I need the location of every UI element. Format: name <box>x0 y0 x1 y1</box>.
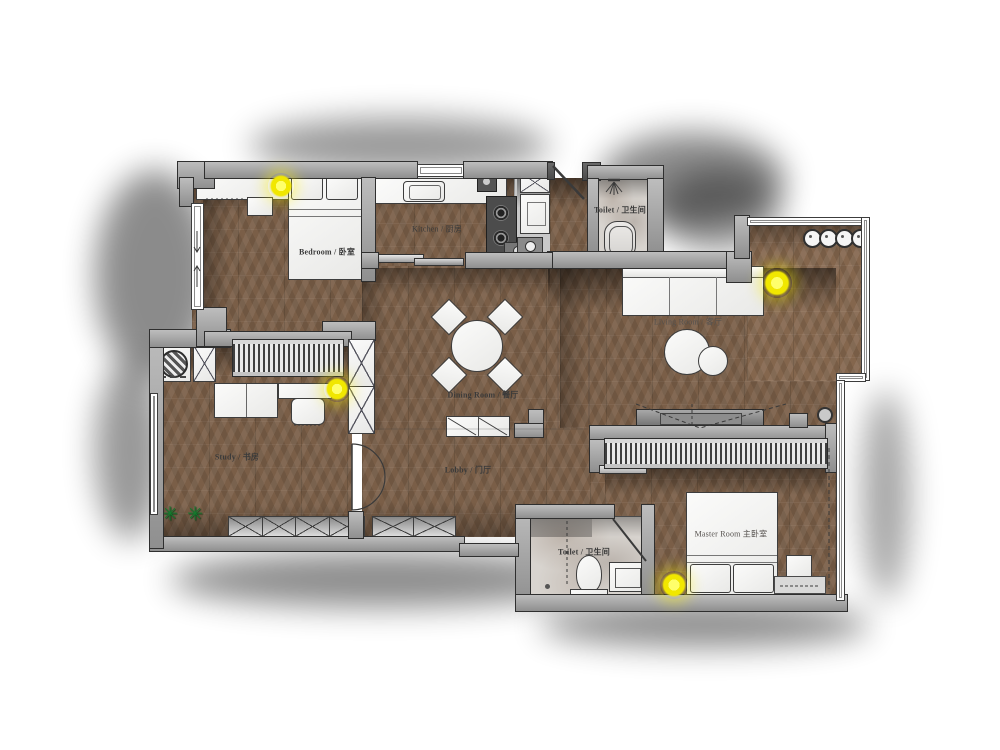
room-label-lobby: Lobby / 门厅 <box>445 465 491 476</box>
tv-projection-dashed <box>636 404 786 428</box>
room-label-kitchen: Kitchen / 厨房 <box>412 224 462 235</box>
sideboard-diagonal <box>479 418 507 435</box>
ceiling-light <box>660 571 688 599</box>
ceiling-light <box>268 173 294 199</box>
room-label-dining: Dining Room / 餐厅 <box>448 390 519 401</box>
room-label-master: Master Room 主卧室 <box>695 529 768 540</box>
room-label-bedroom: Bedroom / 卧室 <box>299 247 355 258</box>
sideboard-diagonal <box>448 418 476 435</box>
study-double-door-arc <box>352 477 385 510</box>
study-double-door-arc <box>352 444 385 477</box>
room-label-toilet-top: Toilet / 卫生间 <box>594 205 646 216</box>
entry-door-leaf <box>553 166 584 199</box>
room-label-study: Study / 书房 <box>215 452 259 463</box>
floor-plan-canvas: ✳ ✳ <box>0 0 1000 750</box>
ceiling-light <box>324 376 350 402</box>
room-label-toilet-bottom: Toilet / 卫生间 <box>558 547 610 558</box>
ceiling-light <box>762 268 792 298</box>
window-slide-arrows <box>194 231 200 287</box>
shower-head <box>606 180 622 195</box>
plan-annotations <box>0 0 1000 750</box>
toilet-door-leaf <box>613 519 646 561</box>
room-label-living: Living Room / 客厅 <box>654 317 722 328</box>
